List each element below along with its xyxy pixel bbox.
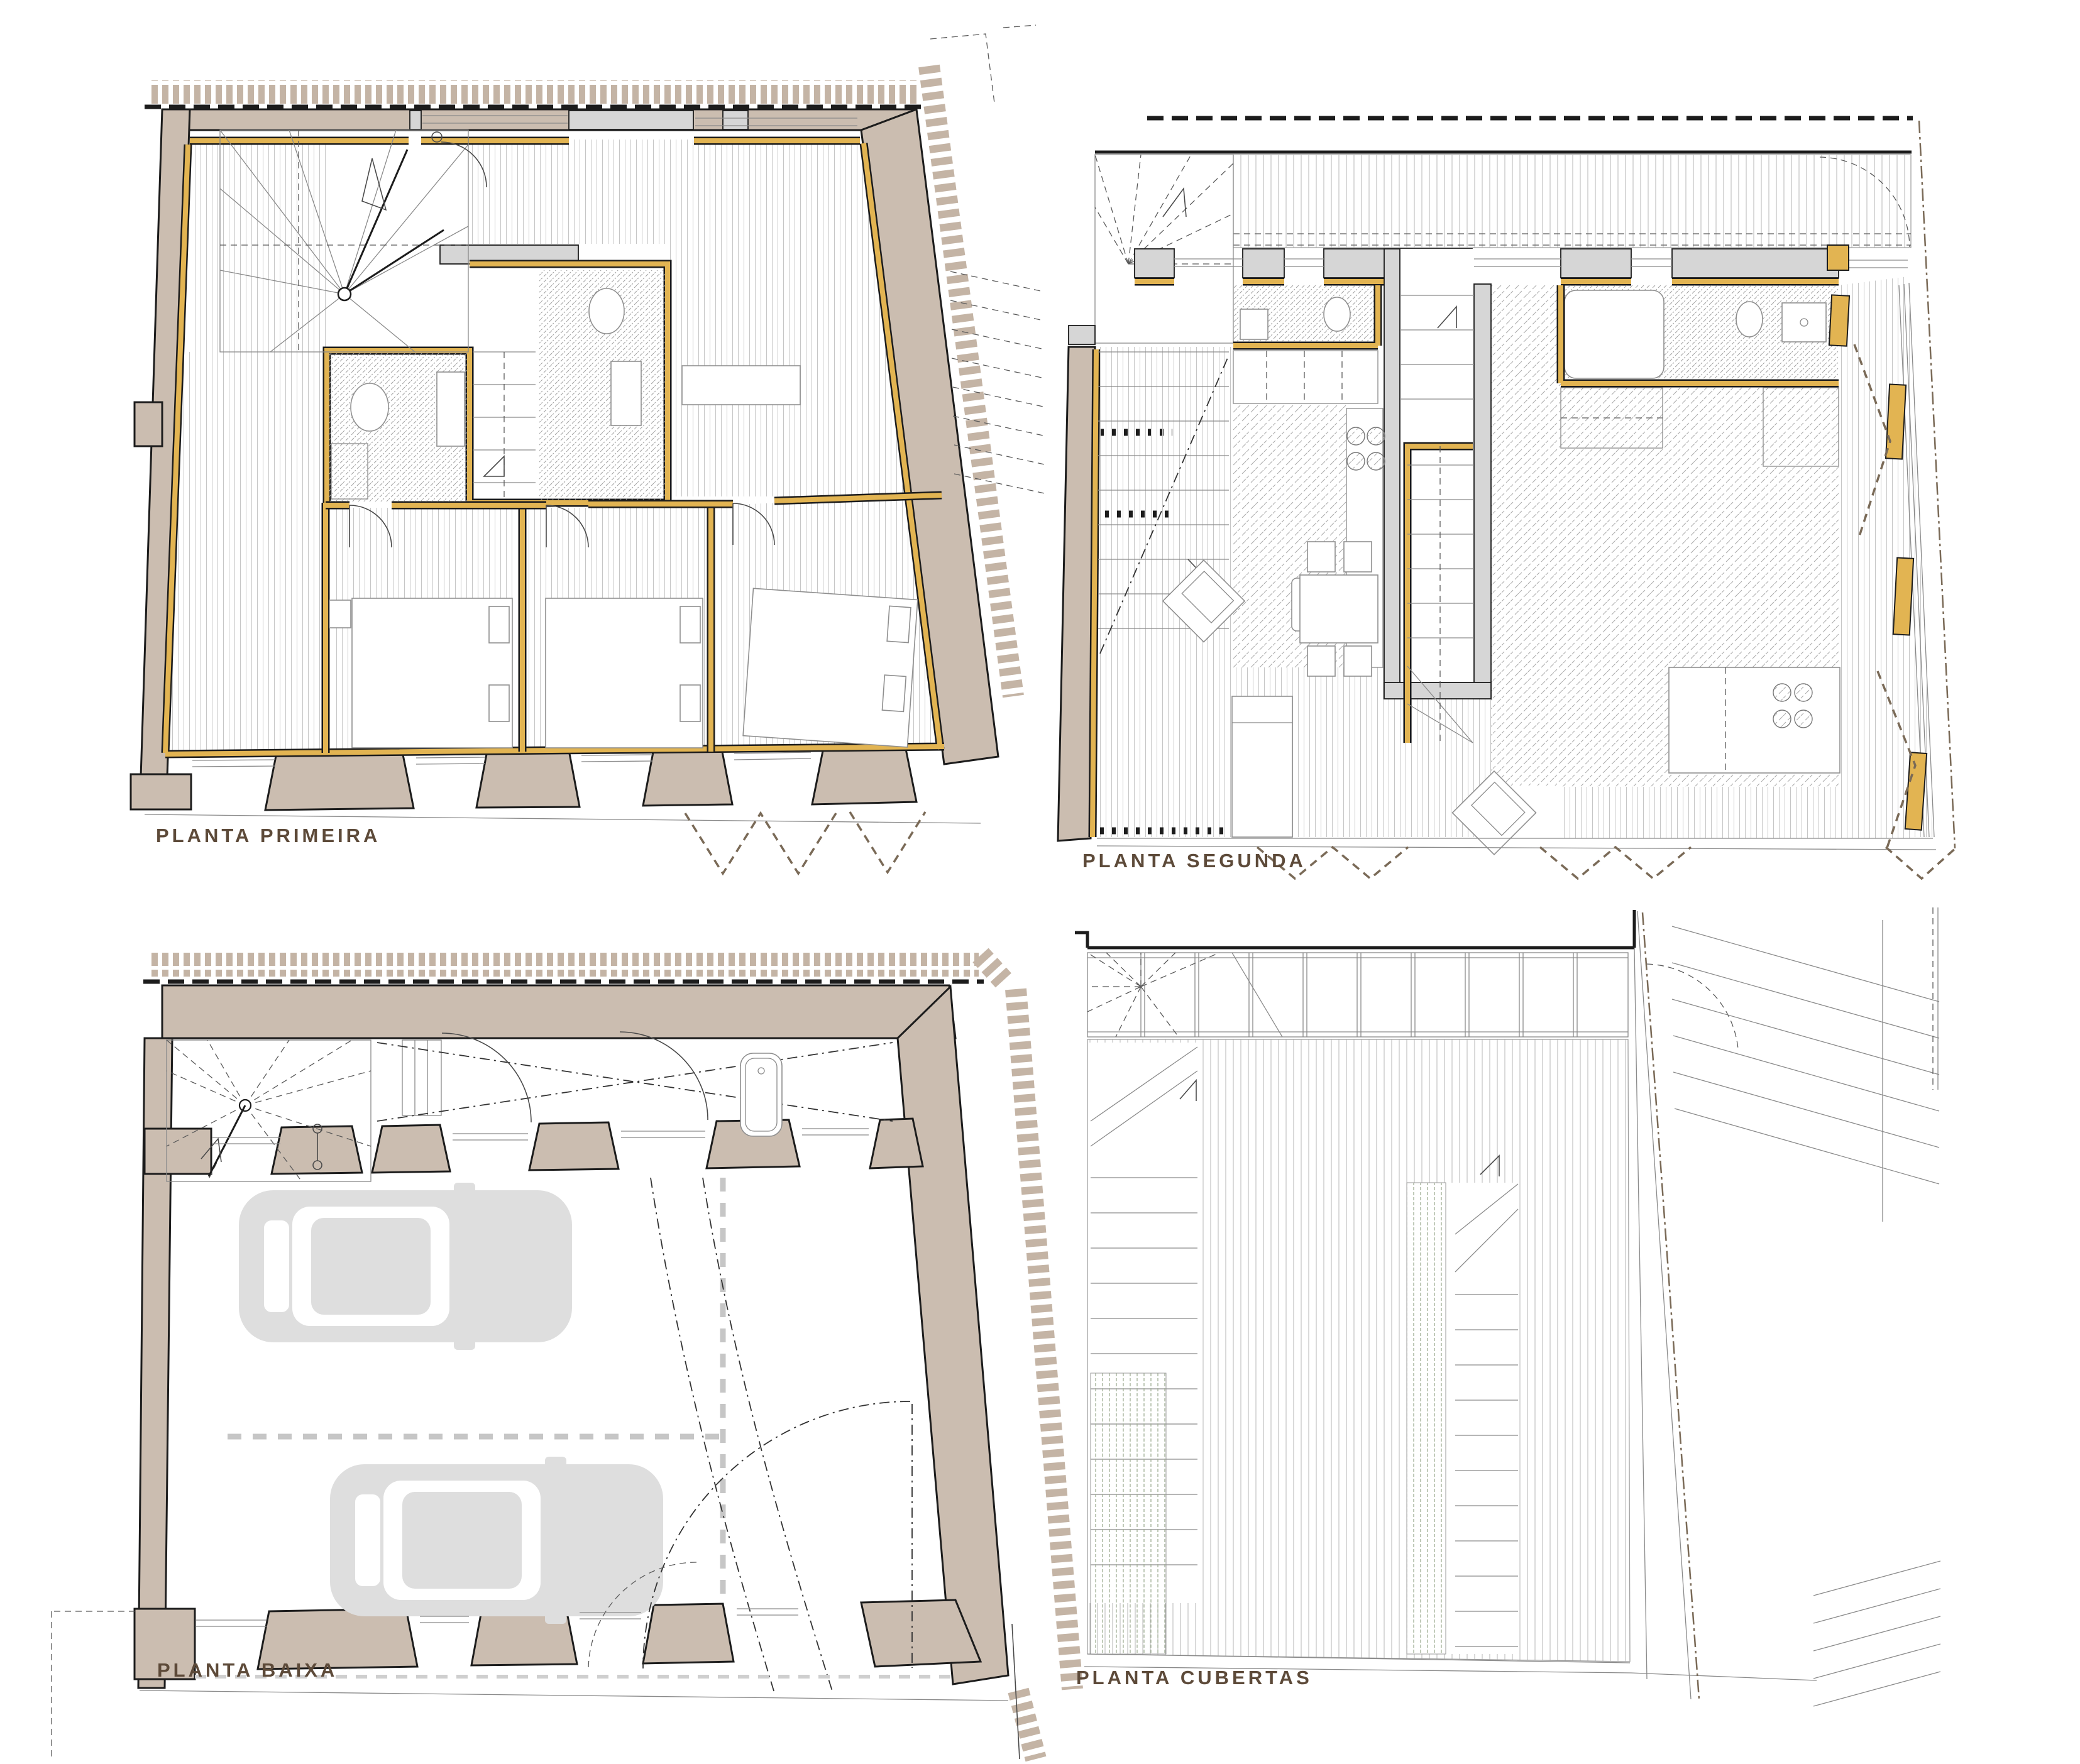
label-planta-cubertas: PLANTA CUBERTAS (1076, 1667, 1312, 1689)
skylight-band (1087, 953, 1628, 1037)
drawing-sheet: PLANTA PRIMEIRA PLANTA SEGUNDA PLANTA BA… (0, 0, 2080, 1764)
roof-outline (1075, 910, 1634, 948)
duct (402, 1040, 441, 1115)
plans-drawing (0, 0, 2080, 1764)
bathroom-center (539, 270, 666, 500)
car-2 (330, 1457, 663, 1624)
ceiling-cross (377, 1043, 893, 1121)
plan-planta-primeira (131, 25, 1047, 874)
kitchen-island (1669, 667, 1840, 773)
label-planta-baixa: PLANTA BAIXA (157, 1659, 338, 1682)
neighbor-bricks-right (1012, 989, 1072, 1759)
plan-planta-baixa (52, 953, 1072, 1759)
plan-planta-segunda (1058, 118, 1957, 879)
left-wall (1058, 326, 1096, 841)
plan-planta-cubertas (1075, 907, 1940, 1706)
central-stair (1384, 249, 1491, 743)
bathtub (740, 1053, 782, 1136)
party-wall-hatch (145, 80, 923, 107)
car-1 (239, 1183, 572, 1350)
label-planta-primeira: PLANTA PRIMEIRA (156, 824, 380, 847)
terrace (1233, 155, 1911, 248)
stair-treads (473, 352, 536, 501)
neighbor-right (1634, 907, 1940, 1706)
party-wall-hatch (143, 953, 1006, 983)
stair-void-left (1089, 1043, 1199, 1654)
structural-wall-band (1135, 249, 1908, 282)
label-planta-segunda: PLANTA SEGUNDA (1082, 850, 1306, 872)
bathroom-left (328, 353, 468, 501)
stair-void-right (1407, 1156, 1519, 1654)
